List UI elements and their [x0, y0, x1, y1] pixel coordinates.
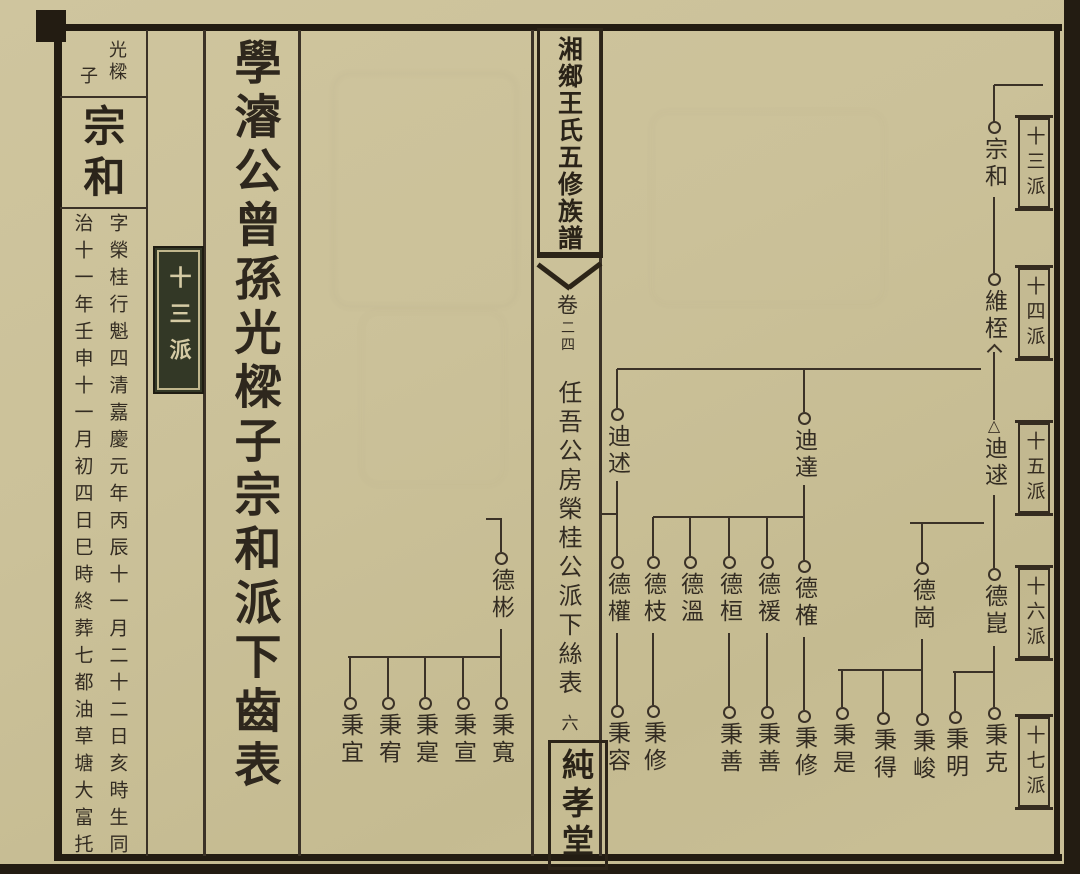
person-name-label: 迪達 — [793, 428, 816, 482]
person-name-label: 秉容 — [606, 721, 629, 775]
person-circle-marker — [495, 552, 508, 565]
fishtail-ornament — [567, 261, 602, 289]
person-circle-marker — [611, 408, 624, 421]
descent-line — [953, 671, 994, 673]
person-name-label: 秉克 — [983, 723, 1006, 777]
person-circle-marker — [836, 707, 849, 720]
generation-cartouche-label: 十七派 — [1025, 725, 1044, 800]
descent-line — [803, 369, 805, 412]
descent-line — [766, 517, 768, 556]
descent-line — [728, 517, 730, 556]
person-circle-marker — [798, 560, 811, 573]
person-name-label: 秉明 — [944, 727, 967, 781]
person-circle-marker — [916, 562, 929, 575]
volume-number: 二四 — [559, 320, 573, 354]
person-name-label: 秉是 — [831, 723, 854, 777]
page-border-left — [54, 24, 62, 861]
person-name-label: 迪逑 — [983, 436, 1006, 490]
generation-cartouche: 十七派 — [1018, 717, 1050, 807]
page-edge-right-band — [1064, 0, 1080, 874]
person-name-label: 維桎 — [983, 289, 1006, 343]
entry-divider — [60, 96, 146, 98]
person-circle-marker — [761, 706, 774, 719]
descent-line — [993, 85, 995, 122]
person-name-label: 德枝 — [642, 572, 665, 626]
generation-cartouche: 十五派 — [1018, 423, 1050, 513]
person-circle-marker — [382, 697, 395, 710]
person-circle-marker — [684, 556, 697, 569]
person-circle-marker — [723, 706, 736, 719]
person-name-label: 秉善 — [718, 722, 741, 776]
person-circle-marker — [988, 568, 1001, 581]
descent-line — [599, 513, 618, 515]
person-circle-marker — [611, 705, 624, 718]
person-name-label: 秉峻 — [911, 729, 934, 783]
column-rule — [146, 30, 148, 856]
person-circle-marker — [949, 711, 962, 724]
person-circle-marker — [495, 697, 508, 710]
person-name-label: 秉寬 — [490, 713, 513, 767]
descent-line — [617, 368, 981, 370]
volume-label: 卷 — [556, 294, 577, 317]
descent-line — [462, 657, 464, 697]
hall-name: 純孝堂 — [560, 748, 592, 862]
adoption-arrow-up-icon — [987, 344, 1003, 360]
person-name-label: 德禐 — [756, 572, 779, 626]
person-circle-marker — [647, 705, 660, 718]
person-circle-marker — [988, 707, 1001, 720]
person-circle-marker — [419, 697, 432, 710]
adoption-triangle-marker: △ — [988, 418, 1000, 434]
person-circle-marker — [916, 713, 929, 726]
descent-line — [921, 639, 923, 713]
ink-bleed-ghost — [650, 110, 886, 306]
generation-seal-label: 十三派 — [168, 266, 190, 374]
descent-line — [994, 84, 1043, 86]
entry-bio-left: 治十一年壬申十一月初四日巳時終葬七都油草塘大富托 — [73, 213, 92, 861]
column-rule — [203, 30, 206, 856]
generation-seal: 十三派 — [153, 246, 204, 394]
descent-line — [424, 657, 426, 697]
person-name-label: 德溫 — [679, 572, 702, 626]
person-circle-marker — [988, 121, 1001, 134]
descent-line — [616, 633, 618, 705]
ink-bleed-ghost — [332, 72, 518, 308]
ink-bleed-ghost — [360, 310, 506, 486]
generation-cartouche-label: 十四派 — [1025, 276, 1044, 351]
descent-line — [387, 657, 389, 697]
descent-line — [652, 517, 654, 556]
descent-line — [993, 646, 995, 707]
person-name-label: 德榷 — [793, 576, 816, 630]
entry-relation: 子 — [79, 66, 97, 88]
entry-divider — [60, 207, 146, 209]
book-title: 湘鄉王氏五修族譜 — [556, 36, 581, 252]
person-name-label: 德崗 — [911, 578, 934, 632]
page-border-right — [1054, 24, 1060, 861]
descent-line — [803, 637, 805, 710]
person-name-label: 迪述 — [606, 424, 629, 478]
descent-line — [803, 485, 805, 560]
person-name-label: 德彬 — [490, 568, 513, 622]
person-name-label: 秉宥 — [377, 713, 400, 767]
person-circle-marker — [761, 556, 774, 569]
descent-line — [993, 352, 995, 420]
descent-line — [616, 369, 618, 408]
generation-cartouche: 十四派 — [1018, 268, 1050, 358]
page-edge-bottom-band — [0, 864, 1080, 874]
person-circle-marker — [344, 697, 357, 710]
person-name-label: 秉善 — [756, 722, 779, 776]
descent-line — [954, 672, 956, 711]
person-circle-marker — [457, 697, 470, 710]
person-name-label: 秉宜 — [339, 713, 362, 767]
person-circle-marker — [798, 710, 811, 723]
person-name-label: 德崑 — [983, 584, 1006, 638]
person-circle-marker — [798, 412, 811, 425]
leaf-number: 六 — [560, 714, 577, 731]
descent-line — [616, 481, 618, 556]
person-name-label: 秉修 — [642, 721, 665, 775]
descent-line — [500, 629, 502, 697]
section-title: 學濬公曾孫光樑子宗和派下齒表 — [229, 38, 276, 794]
person-name-label: 秉寔 — [414, 713, 437, 767]
generation-cartouche-label: 十五派 — [1025, 431, 1044, 506]
descent-line — [841, 670, 843, 707]
person-circle-marker — [647, 556, 660, 569]
descent-line — [689, 517, 691, 556]
descent-line — [766, 633, 768, 706]
descent-line — [993, 495, 995, 568]
person-name-label: 宗和 — [983, 137, 1006, 191]
entry-bio-right: 字榮桂行魁四清嘉慶元年丙辰十一月二十二日亥時生同 — [108, 213, 127, 861]
person-name-label: 秉得 — [872, 728, 895, 782]
person-name-label: 德桓 — [718, 572, 741, 626]
person-name-label: 秉宣 — [452, 713, 475, 767]
descent-line — [882, 670, 884, 712]
genealogy-page: 光樑 子 宗和 字榮桂行魁四清嘉慶元年丙辰十一月二十二日亥時生同 治十一年壬申十… — [0, 0, 1080, 874]
person-circle-marker — [877, 712, 890, 725]
descent-line — [993, 197, 995, 273]
descent-line — [349, 657, 351, 697]
fishtail-ornament — [537, 252, 603, 258]
descent-line — [652, 633, 654, 705]
generation-cartouche-label: 十六派 — [1025, 576, 1044, 651]
column-rule — [531, 30, 534, 856]
person-name-label: 德權 — [606, 572, 629, 626]
generation-cartouche-label: 十三派 — [1025, 126, 1044, 201]
column-rule — [298, 30, 301, 856]
descent-line — [500, 519, 502, 552]
person-circle-marker — [988, 273, 1001, 286]
person-name-label: 秉修 — [793, 726, 816, 780]
person-circle-marker — [611, 556, 624, 569]
generation-cartouche: 十六派 — [1018, 568, 1050, 658]
descent-line — [838, 669, 922, 671]
person-circle-marker — [723, 556, 736, 569]
generation-cartouche: 十三派 — [1018, 118, 1050, 208]
descent-line — [921, 523, 923, 562]
fishtail-ornament — [536, 263, 571, 291]
chart-title: 任吾公房榮桂公派下絲表 — [555, 380, 579, 699]
entry-father-name: 光樑 — [108, 40, 126, 84]
descent-line — [728, 633, 730, 706]
entry-person-name: 宗和 — [79, 104, 121, 206]
